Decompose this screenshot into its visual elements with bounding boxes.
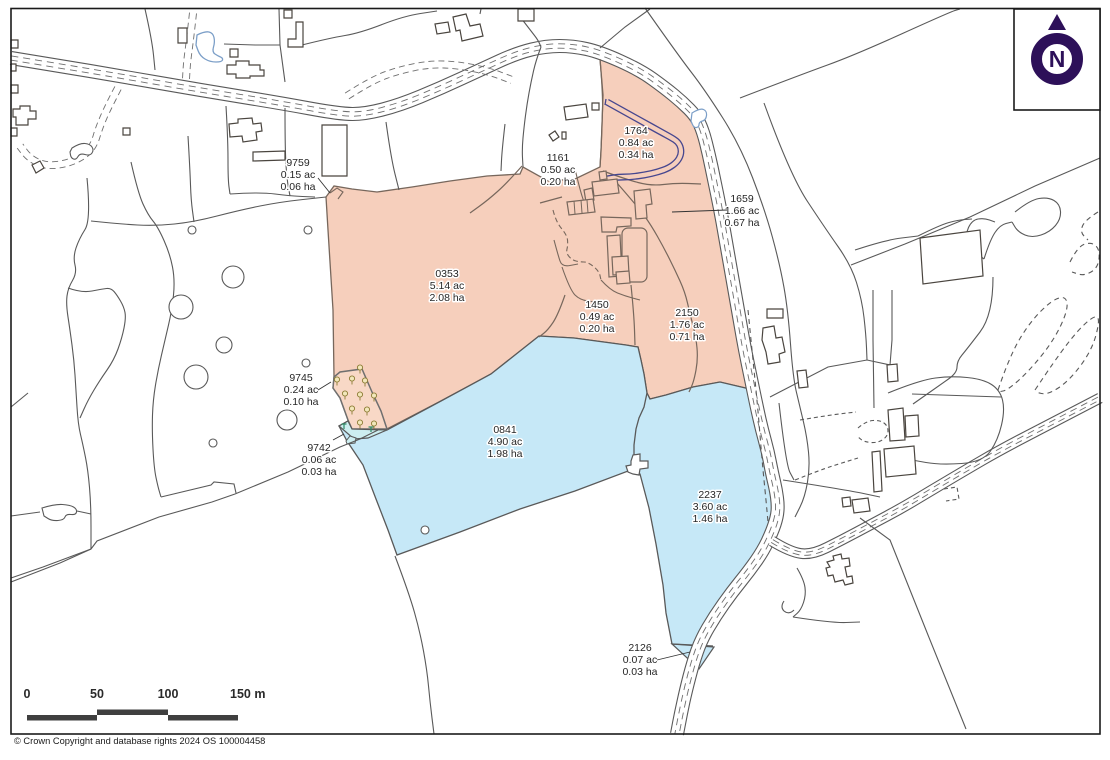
svg-text:3.60 ac: 3.60 ac	[693, 501, 727, 513]
svg-text:0.71 ha: 0.71 ha	[669, 331, 704, 343]
svg-text:2150: 2150	[675, 307, 699, 319]
svg-text:1764: 1764	[624, 125, 648, 137]
svg-text:1.66 ac: 1.66 ac	[725, 205, 759, 217]
svg-text:© Crown Copyright and database: © Crown Copyright and database rights 20…	[14, 736, 265, 746]
svg-text:1659: 1659	[730, 193, 754, 205]
svg-text:2.08 ha: 2.08 ha	[429, 292, 464, 304]
svg-text:0.84 ac: 0.84 ac	[619, 137, 653, 149]
svg-text:50: 50	[90, 687, 104, 701]
svg-text:0.34 ha: 0.34 ha	[618, 149, 653, 161]
svg-text:1450: 1450	[585, 299, 609, 311]
svg-text:0.15 ac: 0.15 ac	[281, 169, 315, 181]
svg-text:1.98 ha: 1.98 ha	[487, 448, 522, 460]
svg-text:0.03 ha: 0.03 ha	[622, 666, 657, 678]
svg-text:0353: 0353	[435, 268, 459, 280]
svg-text:100: 100	[158, 687, 179, 701]
svg-text:0.20 ha: 0.20 ha	[540, 176, 575, 188]
svg-text:0.20 ha: 0.20 ha	[579, 323, 614, 335]
svg-text:9745: 9745	[289, 372, 313, 384]
svg-text:0.67 ha: 0.67 ha	[724, 217, 759, 229]
svg-text:9759: 9759	[286, 157, 310, 169]
svg-text:0.06 ac: 0.06 ac	[302, 454, 336, 466]
svg-text:0.24 ac: 0.24 ac	[284, 384, 318, 396]
svg-text:0: 0	[24, 687, 31, 701]
svg-text:2126: 2126	[628, 642, 652, 654]
svg-text:N: N	[1049, 46, 1066, 72]
svg-text:1161: 1161	[547, 152, 570, 164]
svg-text:150 m: 150 m	[230, 687, 265, 701]
svg-text:0.49 ac: 0.49 ac	[580, 311, 614, 323]
svg-text:1.46 ha: 1.46 ha	[692, 513, 727, 525]
svg-text:0.50 ac: 0.50 ac	[541, 164, 575, 176]
svg-text:9742: 9742	[307, 442, 331, 454]
svg-text:0.03 ha: 0.03 ha	[301, 466, 336, 478]
svg-text:0.07 ac: 0.07 ac	[623, 654, 657, 666]
svg-text:5.14 ac: 5.14 ac	[430, 280, 464, 292]
svg-text:0841: 0841	[493, 424, 517, 436]
svg-text:0.10 ha: 0.10 ha	[283, 396, 318, 408]
svg-text:1.76 ac: 1.76 ac	[670, 319, 704, 331]
svg-text:2237: 2237	[698, 489, 722, 501]
svg-text:0.06 ha: 0.06 ha	[280, 181, 315, 193]
svg-text:4.90 ac: 4.90 ac	[488, 436, 522, 448]
